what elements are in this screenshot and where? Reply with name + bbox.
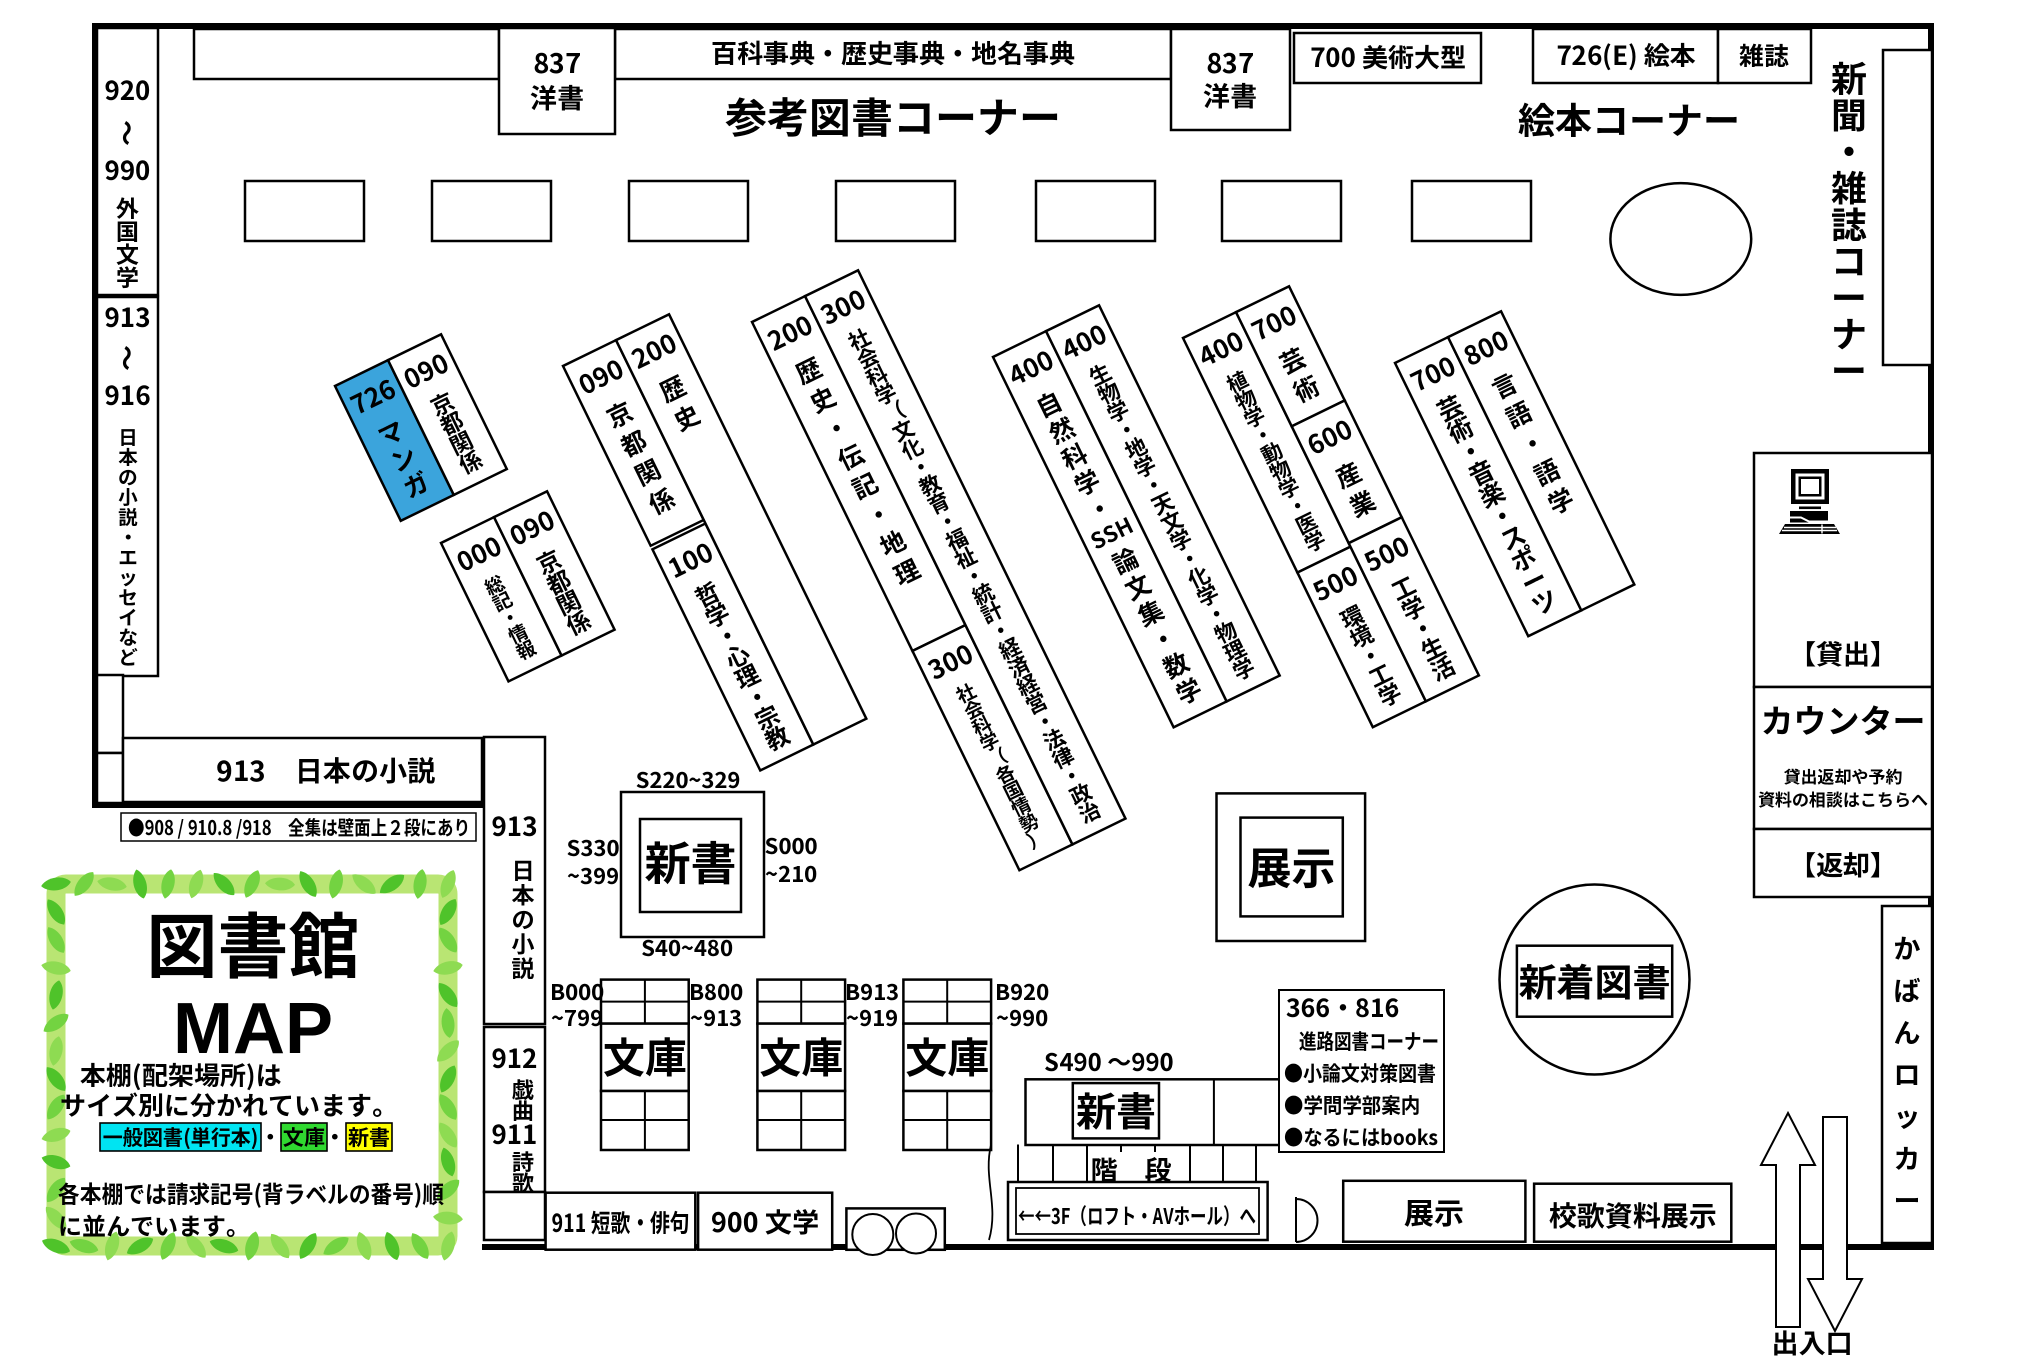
svg-text:文庫: 文庫 bbox=[759, 1025, 843, 1086]
svg-text:~210: ~210 bbox=[765, 857, 817, 889]
svg-text:～: ～ bbox=[109, 120, 146, 146]
svg-text:新書: 新書 bbox=[348, 1122, 390, 1152]
svg-text:説: 説 bbox=[512, 950, 535, 984]
svg-text:カ: カ bbox=[1894, 1138, 1921, 1177]
svg-text:←←3F（ロフト・AVホール）へ: ←←3F（ロフト・AVホール）へ bbox=[1018, 1199, 1256, 1231]
svg-text:雑誌: 雑誌 bbox=[1739, 37, 1789, 73]
svg-text:990: 990 bbox=[104, 151, 150, 188]
svg-text:文庫: 文庫 bbox=[603, 1025, 687, 1086]
svg-text:洋書: 洋書 bbox=[1203, 75, 1257, 114]
svg-text:資料の相談はこちらへ: 資料の相談はこちらへ bbox=[1758, 786, 1928, 811]
svg-text:出入口: 出入口 bbox=[1772, 1322, 1853, 1361]
svg-text:916: 916 bbox=[104, 376, 150, 413]
svg-text:・: ・ bbox=[324, 1120, 346, 1152]
svg-text:一般図書(単行本): 一般図書(単行本) bbox=[103, 1122, 259, 1152]
svg-text:進路図書コーナー: 進路図書コーナー bbox=[1299, 1026, 1439, 1056]
svg-text:ば: ば bbox=[1894, 970, 1921, 1009]
svg-text:366・816: 366・816 bbox=[1286, 989, 1400, 1025]
svg-text:900 文学: 900 文学 bbox=[711, 1201, 819, 1240]
svg-text:ロ: ロ bbox=[1894, 1054, 1921, 1093]
svg-text:新書: 新書 bbox=[645, 828, 737, 894]
svg-text:~913: ~913 bbox=[690, 1001, 742, 1033]
svg-text:S40~480: S40~480 bbox=[641, 931, 733, 963]
svg-text:700 美術大型: 700 美術大型 bbox=[1310, 38, 1466, 75]
svg-text:ッ: ッ bbox=[1894, 1096, 1921, 1135]
svg-text:【貸出】: 【貸出】 bbox=[1789, 633, 1897, 672]
svg-text:913: 913 bbox=[216, 750, 266, 790]
svg-text:911 短歌・俳句: 911 短歌・俳句 bbox=[552, 1204, 690, 1240]
svg-text:●908 / 910.8 /918 全集は壁面上２段にあり: ●908 / 910.8 /918 全集は壁面上２段にあり bbox=[128, 812, 470, 841]
svg-text:展示: 展示 bbox=[1404, 1189, 1464, 1233]
svg-text:ど: ど bbox=[118, 642, 138, 671]
svg-text:洋書: 洋書 bbox=[530, 77, 584, 116]
svg-text:百科事典・歴史事典・地名事典: 百科事典・歴史事典・地名事典 bbox=[711, 34, 1075, 71]
svg-text:●なるにはbooks: ●なるにはbooks bbox=[1284, 1122, 1438, 1152]
svg-text:●学問学部案内: ●学問学部案内 bbox=[1284, 1090, 1420, 1120]
svg-text:●小論文対策図書: ●小論文対策図書 bbox=[1284, 1058, 1436, 1088]
svg-text:に並んでいます。: に並んでいます。 bbox=[58, 1207, 250, 1242]
svg-text:837: 837 bbox=[533, 42, 581, 81]
svg-text:サイズ別に分かれています。: サイズ別に分かれています。 bbox=[60, 1086, 398, 1123]
svg-text:913: 913 bbox=[491, 807, 537, 844]
svg-text:920: 920 bbox=[104, 71, 150, 108]
svg-text:~799: ~799 bbox=[551, 1001, 603, 1033]
svg-text:726(E) 絵本: 726(E) 絵本 bbox=[1556, 36, 1696, 73]
svg-text:図書館: 図書館 bbox=[146, 891, 359, 993]
svg-text:S220~329: S220~329 bbox=[636, 763, 741, 795]
svg-text:~990: ~990 bbox=[996, 1001, 1048, 1033]
svg-text:ん: ん bbox=[1894, 1012, 1921, 1051]
svg-text:校歌資料展示: 校歌資料展示 bbox=[1549, 1195, 1717, 1235]
svg-text:貸出返却や予約: 貸出返却や予約 bbox=[1784, 763, 1903, 788]
svg-text:カウンター: カウンター bbox=[1761, 695, 1926, 743]
svg-text:ー: ー bbox=[1831, 343, 1867, 395]
svg-text:参考図書コーナー: 参考図書コーナー bbox=[725, 85, 1061, 146]
svg-text:・: ・ bbox=[259, 1120, 281, 1152]
svg-text:～: ～ bbox=[109, 345, 146, 371]
svg-text:文庫: 文庫 bbox=[283, 1122, 325, 1152]
svg-text:~919: ~919 bbox=[846, 1001, 898, 1033]
svg-text:~399: ~399 bbox=[567, 859, 619, 891]
svg-text:か: か bbox=[1894, 928, 1921, 967]
svg-text:絵本コーナー: 絵本コーナー bbox=[1518, 91, 1740, 145]
svg-text:新着図書: 新着図書 bbox=[1518, 952, 1670, 1007]
svg-text:【返却】: 【返却】 bbox=[1789, 844, 1897, 883]
svg-text:S490 ～990: S490 ～990 bbox=[1044, 1043, 1173, 1078]
svg-text:日本の小説: 日本の小説 bbox=[295, 750, 435, 790]
svg-text:912: 912 bbox=[491, 1039, 537, 1076]
svg-text:学: 学 bbox=[116, 259, 139, 293]
svg-text:ー: ー bbox=[1894, 1180, 1921, 1219]
svg-text:展示: 展示 bbox=[1248, 833, 1336, 897]
svg-text:各本棚では請求記号(背ラベルの番号)順: 各本棚では請求記号(背ラベルの番号)順 bbox=[58, 1175, 444, 1210]
svg-text:文庫: 文庫 bbox=[905, 1025, 989, 1086]
svg-text:913: 913 bbox=[104, 298, 150, 335]
svg-text:新書: 新書 bbox=[1076, 1080, 1156, 1138]
